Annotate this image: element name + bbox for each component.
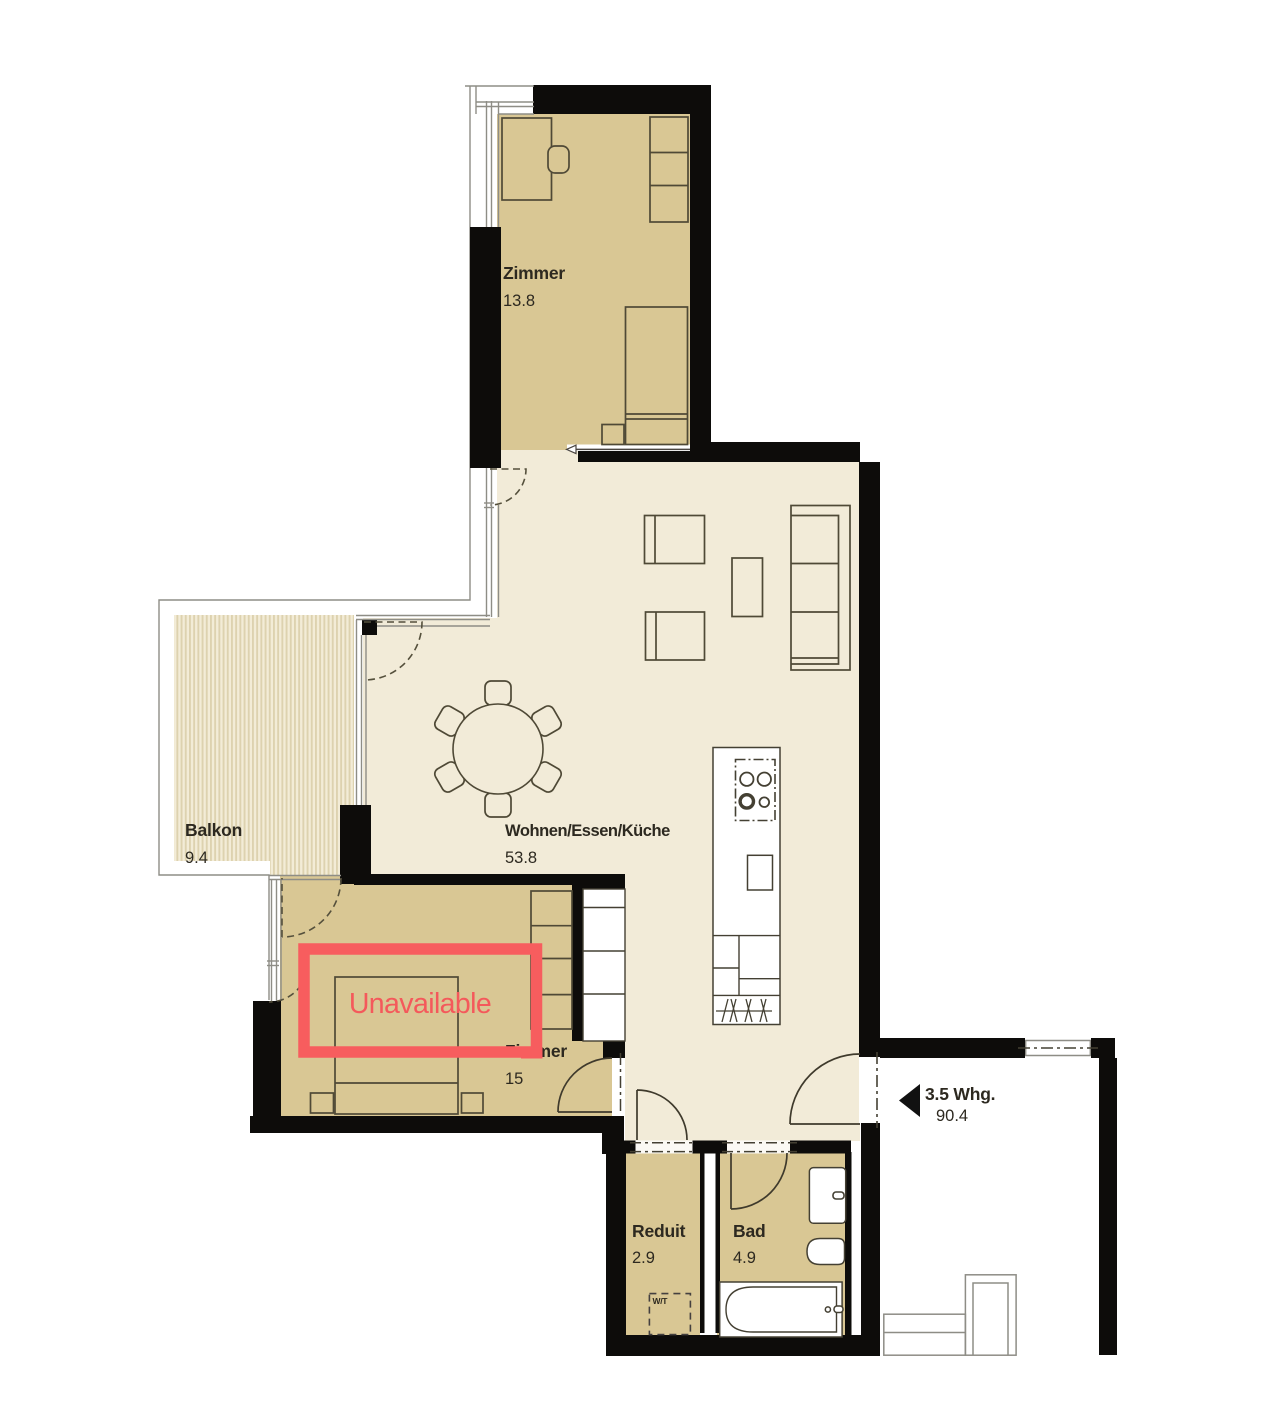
svg-text:Reduit: Reduit xyxy=(632,1221,686,1241)
svg-text:4.9: 4.9 xyxy=(733,1249,756,1267)
svg-text:Zimmer: Zimmer xyxy=(503,263,565,283)
svg-text:W/T: W/T xyxy=(653,1296,669,1306)
svg-text:9.4: 9.4 xyxy=(185,849,208,867)
svg-text:Balkon: Balkon xyxy=(185,820,242,840)
svg-text:Unavailable: Unavailable xyxy=(349,988,491,1020)
svg-text:15: 15 xyxy=(505,1070,523,1088)
svg-text:3.5 Whg.: 3.5 Whg. xyxy=(925,1084,995,1104)
svg-text:Wohnen/Essen/Küche: Wohnen/Essen/Küche xyxy=(505,822,670,840)
svg-text:Bad: Bad xyxy=(733,1221,765,1241)
svg-text:2.9: 2.9 xyxy=(632,1249,655,1267)
svg-text:53.8: 53.8 xyxy=(505,849,537,867)
svg-text:90.4: 90.4 xyxy=(936,1107,968,1125)
svg-text:13.8: 13.8 xyxy=(503,292,535,310)
